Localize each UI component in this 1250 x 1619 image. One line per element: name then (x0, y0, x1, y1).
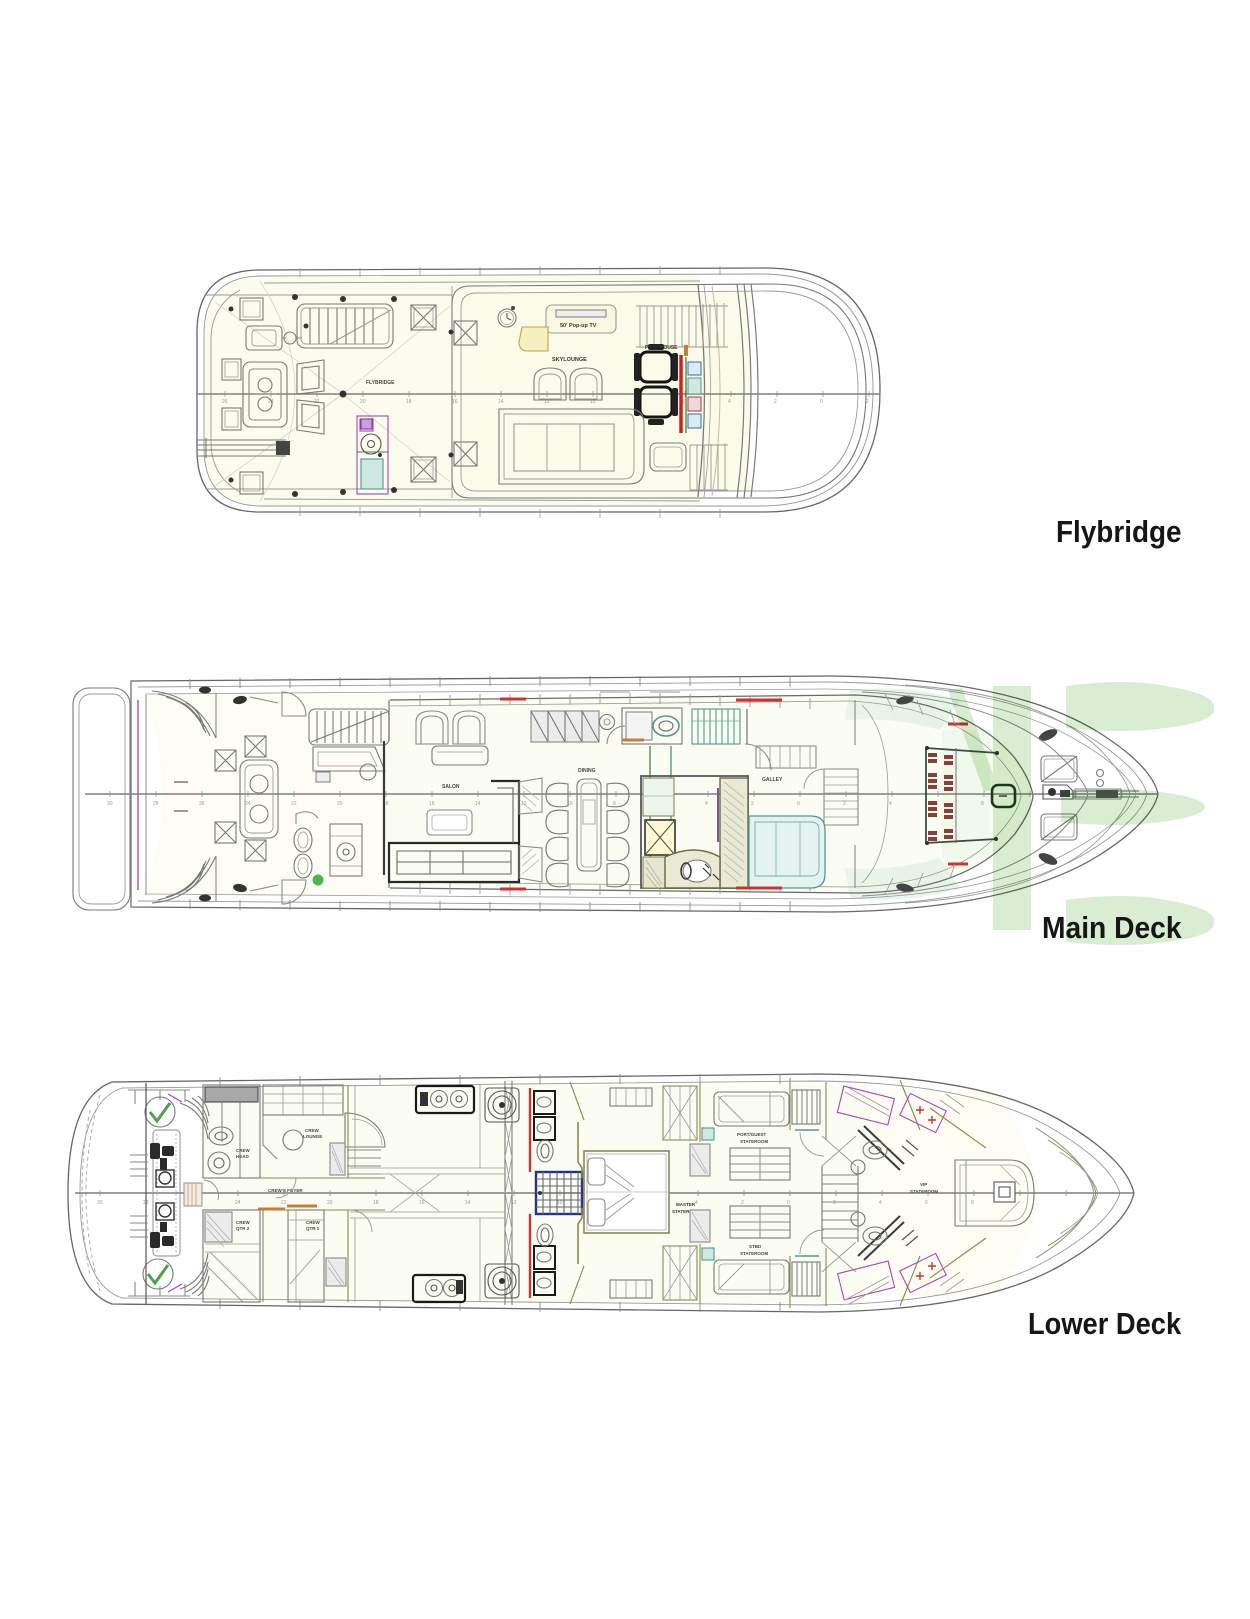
svg-text:CREW'S FOYER: CREW'S FOYER (268, 1188, 303, 1193)
svg-text:CREW: CREW (236, 1220, 251, 1225)
svg-text:10: 10 (557, 1200, 563, 1206)
svg-text:2: 2 (833, 1200, 836, 1206)
svg-text:20: 20 (337, 801, 343, 807)
svg-text:LOUNGE: LOUNGE (303, 1134, 322, 1139)
svg-text:DINING: DINING (578, 768, 596, 774)
svg-text:VIP: VIP (920, 1182, 927, 1187)
svg-text:STBD: STBD (749, 1244, 762, 1249)
svg-text:4: 4 (728, 399, 731, 405)
svg-text:18: 18 (373, 1200, 379, 1206)
svg-text:20: 20 (360, 399, 366, 405)
svg-text:CREW: CREW (236, 1148, 251, 1153)
svg-text:16: 16 (419, 1200, 425, 1206)
svg-text:26: 26 (199, 801, 205, 807)
svg-text:4: 4 (705, 801, 708, 807)
svg-text:2: 2 (774, 399, 777, 405)
svg-text:24: 24 (245, 801, 251, 807)
svg-text:STATEROOM: STATEROOM (740, 1139, 768, 1144)
svg-text:8: 8 (971, 1200, 974, 1206)
svg-text:0: 0 (820, 399, 823, 405)
svg-text:STATEROOM: STATEROOM (910, 1189, 938, 1194)
svg-text:0: 0 (797, 801, 800, 807)
svg-text:22: 22 (281, 1200, 287, 1206)
svg-text:50' Pop-up TV: 50' Pop-up TV (560, 323, 597, 329)
svg-text:PILOTHOUSE: PILOTHOUSE (645, 345, 678, 351)
svg-text:30: 30 (107, 801, 113, 807)
svg-text:4: 4 (879, 1200, 882, 1206)
svg-text:STATEROOM: STATEROOM (740, 1251, 768, 1256)
svg-text:QTR 2: QTR 2 (236, 1226, 250, 1231)
svg-text:HEAD: HEAD (236, 1154, 250, 1159)
svg-text:8: 8 (613, 801, 616, 807)
svg-text:0: 0 (787, 1200, 790, 1206)
svg-text:2: 2 (866, 399, 869, 405)
svg-text:FLYBRIDGE: FLYBRIDGE (366, 380, 395, 386)
svg-text:16: 16 (452, 399, 458, 405)
svg-text:16: 16 (429, 801, 435, 807)
svg-text:30: 30 (97, 1200, 103, 1206)
svg-text:2: 2 (843, 801, 846, 807)
svg-text:20: 20 (327, 1200, 333, 1206)
svg-text:14: 14 (465, 1200, 471, 1206)
svg-text:PORT/GUEST: PORT/GUEST (737, 1132, 767, 1137)
svg-text:6: 6 (925, 1200, 928, 1206)
svg-text:CREW: CREW (306, 1220, 321, 1225)
svg-text:28: 28 (153, 801, 159, 807)
svg-text:CREW: CREW (305, 1128, 320, 1133)
svg-text:SKYLOUNGE: SKYLOUNGE (552, 357, 587, 363)
svg-text:26: 26 (222, 399, 228, 405)
svg-text:18: 18 (406, 399, 412, 405)
svg-text:SALON: SALON (442, 784, 460, 790)
svg-text:MASTER: MASTER (676, 1202, 696, 1207)
svg-text:QTR 1: QTR 1 (306, 1226, 320, 1231)
svg-text:24: 24 (235, 1200, 241, 1206)
svg-text:GALLEY: GALLEY (762, 777, 783, 783)
svg-text:14: 14 (498, 399, 504, 405)
svg-text:2: 2 (741, 1200, 744, 1206)
svg-text:22: 22 (291, 801, 297, 807)
svg-text:2: 2 (751, 801, 754, 807)
svg-text:8: 8 (981, 801, 984, 807)
svg-text:4: 4 (695, 1200, 698, 1206)
svg-text:14: 14 (475, 801, 481, 807)
svg-text:4: 4 (889, 801, 892, 807)
